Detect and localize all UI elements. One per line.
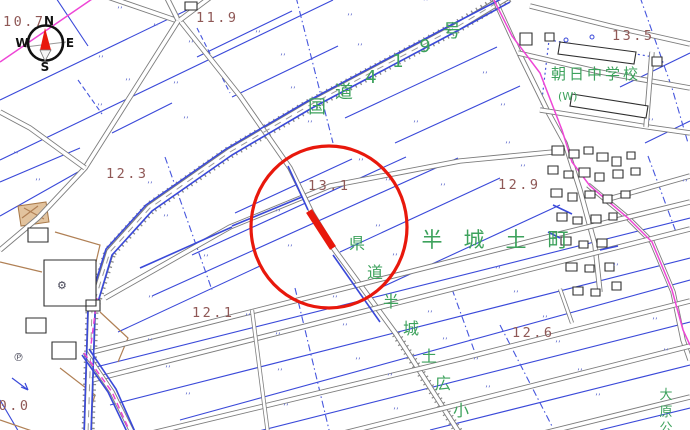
park-name-char: 大 [659, 388, 672, 403]
park-name-char: 公 [659, 421, 672, 430]
paddy-field-mark: ’’ [148, 295, 154, 305]
paddy-field-mark: ’’ [287, 244, 293, 254]
paddy-field-mark: ’’ [165, 365, 171, 375]
route419-label-char: 1 [392, 51, 403, 72]
paddy-field-mark: ’’ [387, 373, 393, 383]
paddy-field-mark: ’’ [97, 103, 103, 113]
pref-road-label-char: 半 [383, 292, 399, 311]
paddy-field-mark: ’’ [183, 116, 189, 126]
paddy-field-mark: ’’ [393, 407, 399, 417]
paddy-field-mark: ’’ [342, 323, 348, 333]
paddy-field-mark: ’’ [613, 263, 619, 273]
paddy-field-mark: ’’ [290, 86, 296, 96]
elevation-label: 12.9 [498, 177, 541, 193]
paddy-field-mark: ’’ [682, 179, 688, 189]
paddy-field-mark: ’’ [495, 266, 501, 276]
paddy-field-mark: ’’ [185, 392, 191, 402]
paddy-field-mark: ’’ [392, 253, 398, 263]
pref-road-label-char: 小 [453, 401, 469, 420]
paddy-field-mark: ’’ [385, 178, 391, 188]
paddy-field-mark: ’’ [485, 385, 491, 395]
elevation-label: 13.1 [308, 178, 351, 194]
paddy-field-mark: ’’ [423, 0, 429, 8]
paddy-field-mark: ’’ [542, 315, 548, 325]
route419-label-char: 国 [308, 97, 326, 118]
paddy-field-mark: ’’ [347, 13, 353, 23]
pref-road-label-char: 広 [435, 374, 451, 393]
town-name-char: 城 [464, 228, 485, 252]
school-well-label: (W) [558, 90, 577, 103]
paddy-field-mark: ’’ [648, 118, 654, 128]
town-name-char: 土 [506, 228, 527, 252]
route419-label-char: 号 [443, 21, 461, 42]
paddy-field-mark: ’’ [125, 78, 131, 88]
paddy-field-mark: ’’ [245, 313, 251, 323]
paddy-field-mark: ’’ [147, 181, 153, 191]
paddy-field-mark: ’’ [307, 120, 313, 130]
paddy-field-mark: ’’ [577, 368, 583, 378]
paddy-field-mark: ’’ [277, 368, 283, 378]
paddy-field-mark: ’’ [117, 6, 123, 16]
compass-w: W [15, 36, 28, 50]
paddy-field-mark: ’’ [413, 120, 419, 130]
paddy-field-mark: ’’ [163, 214, 169, 224]
school-label: 朝日中学校 [551, 65, 641, 83]
paddy-field-mark: ’’ [280, 53, 286, 63]
pref-road-label-char: 土 [421, 347, 437, 366]
elevation-label: 10.0 [0, 398, 31, 414]
paddy-field-mark: ’’ [500, 103, 506, 113]
pref-road-label-char: 県 [349, 234, 365, 253]
route419-label-char: 9 [419, 36, 430, 57]
paddy-field-mark: ’’ [35, 178, 41, 188]
paddy-field-mark: ’’ [663, 348, 669, 358]
pref-road-label-char: 道 [367, 263, 383, 282]
paddy-field-mark: ’’ [652, 317, 658, 327]
compass-s: S [41, 60, 50, 74]
park-name-char: 原 [659, 405, 672, 420]
paddy-field-mark: ’’ [482, 71, 488, 81]
elevation-label: 12.6 [512, 325, 555, 341]
elevation-label: 12.1 [192, 305, 235, 321]
paddy-field-mark: ’’ [355, 357, 361, 367]
town-name-char: 町 [548, 228, 569, 252]
paddy-field-mark: ’’ [505, 141, 511, 151]
map-canvas[interactable]: ℗ ⚙ 朝日中学校 (W) ’’’’’’’’’’’’’’’’’’’’’’’’’’… [0, 0, 690, 430]
paddy-field-mark: ’’ [357, 43, 363, 53]
paddy-field-mark: ’’ [188, 40, 194, 50]
paddy-field-mark: ’’ [275, 332, 281, 342]
paddy-field-mark: ’’ [13, 151, 19, 161]
paddy-field-mark: ’’ [555, 340, 561, 350]
paddy-field-mark: ’’ [440, 183, 446, 193]
paddy-field-mark: ’’ [442, 337, 448, 347]
paddy-field-mark: ’’ [275, 209, 281, 219]
paddy-field-mark: ’’ [358, 158, 364, 168]
pref-road-label-char: 城 [403, 319, 419, 338]
elevation-label: 13.5 [612, 28, 655, 44]
cadastral-map: ℗ ⚙ 朝日中学校 (W) ’’’’’’’’’’’’’’’’’’’’’’’’’’… [0, 0, 690, 430]
paddy-field-mark: ’’ [173, 81, 179, 91]
paddy-field-mark: ’’ [473, 357, 479, 367]
compass-n: N [44, 14, 54, 28]
paddy-field-mark: ’’ [203, 254, 209, 264]
elevation-label: 12.3 [106, 166, 149, 182]
paddy-field-mark: ’’ [147, 338, 153, 348]
paddy-field-mark: ’’ [427, 310, 433, 320]
paddy-field-mark: ’’ [595, 393, 601, 403]
factory-symbol-icon: ⚙ [57, 279, 67, 292]
paddy-field-mark: ’’ [520, 164, 526, 174]
compass-e: E [66, 36, 74, 50]
route419-label-char: 道 [335, 82, 353, 103]
town-name-char: 半 [422, 228, 443, 252]
paddy-field-mark: ’’ [255, 30, 261, 40]
paddy-field-mark: ’’ [513, 290, 519, 300]
route419-label-char: 4 [365, 67, 376, 88]
paddy-field-mark: ’’ [332, 295, 338, 305]
elevation-label: 11.9 [196, 10, 239, 26]
paddy-field-mark: ’’ [98, 55, 104, 65]
paddy-field-mark: ’’ [283, 403, 289, 413]
paddy-field-mark: ’’ [375, 224, 381, 234]
parking-symbol-icon: ℗ [13, 351, 24, 364]
paddy-field-mark: ’’ [153, 23, 159, 33]
